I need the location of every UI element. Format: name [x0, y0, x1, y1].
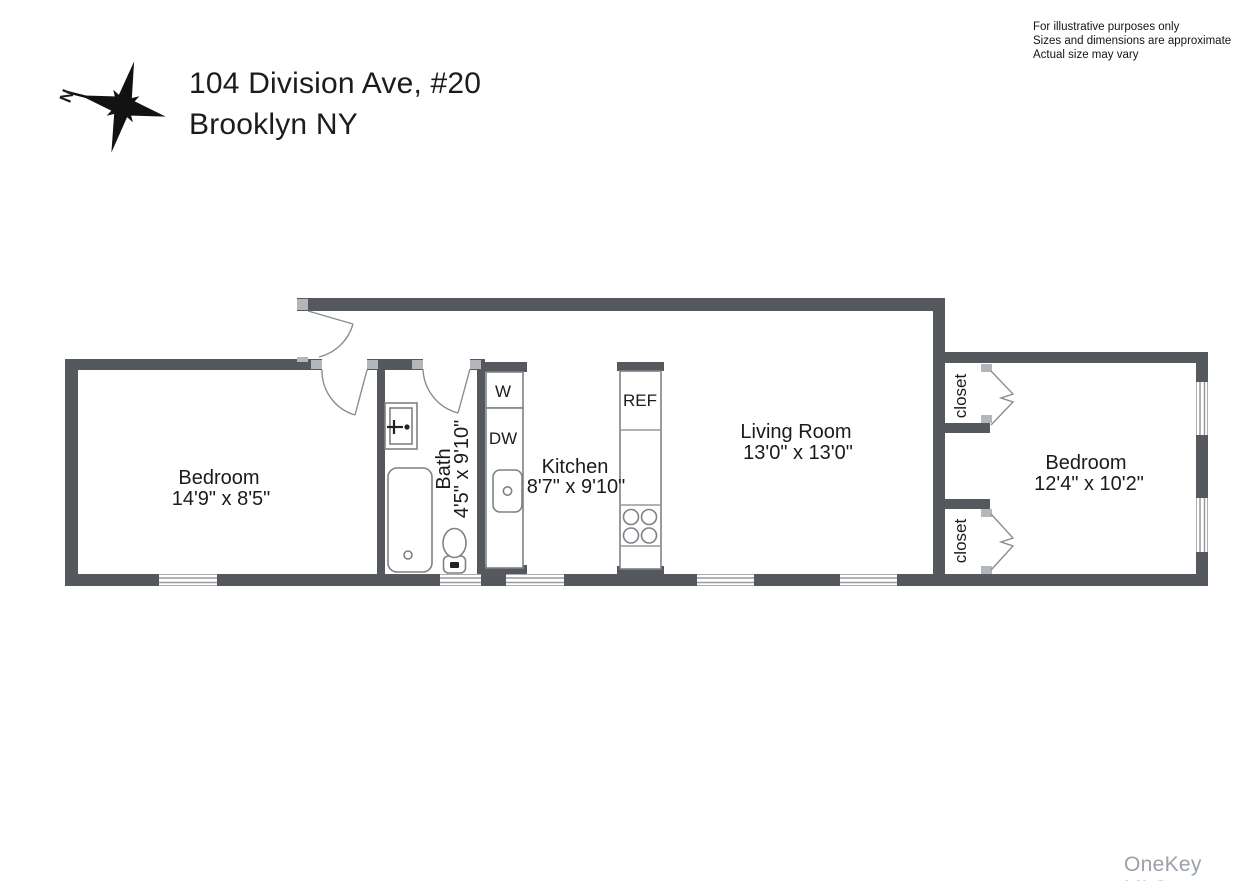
toilet [443, 529, 466, 574]
window [506, 575, 564, 586]
closet-top-label: closet [951, 374, 970, 419]
window [697, 575, 754, 586]
wall-bedroom2-top [933, 352, 1208, 363]
closet-bottom-bifold-door [991, 514, 1013, 570]
wall-top [297, 298, 945, 311]
jamb [981, 566, 992, 574]
counter-cap-left-top [483, 362, 527, 372]
kitchen-counter-left [486, 372, 523, 568]
floor-plan-page: 104 Division Ave, #20 Brooklyn NY For il… [0, 0, 1246, 881]
jamb [297, 357, 308, 362]
jamb [981, 364, 992, 372]
kitchen-label: Kitchen [542, 456, 609, 478]
jamb [412, 360, 423, 369]
closet-top-bifold-door [991, 371, 1013, 425]
counter-cap-right-top [617, 362, 664, 371]
living-room-label: Living Room [740, 421, 851, 443]
wall-left [65, 359, 78, 586]
wall-closet2-top [933, 499, 990, 509]
jamb [470, 360, 481, 369]
wall-bottom [65, 574, 1208, 586]
jamb [981, 415, 992, 423]
dishwasher-label: DW [489, 429, 517, 448]
jamb [367, 360, 378, 369]
window [840, 575, 897, 586]
bedroom-left-dims: 14'9" x 8'5" [172, 488, 271, 510]
bath-sink [385, 403, 417, 449]
window [1197, 498, 1208, 552]
entry-door-arc [308, 311, 353, 357]
wall-bedroom1-top [65, 359, 322, 370]
window [440, 575, 481, 586]
closet-bottom-label: closet [951, 519, 970, 564]
jamb [981, 509, 992, 517]
wall-living-east [933, 298, 945, 586]
window [159, 575, 217, 586]
wall-closet1-bottom [933, 423, 990, 433]
bedroom-right-label: Bedroom [1045, 452, 1126, 474]
bath-dims: 4'5" x 9'10" [451, 420, 473, 519]
wall-bath-left [377, 359, 385, 574]
living-room-dims: 13'0" x 13'0" [743, 442, 853, 464]
compass-icon: N [55, 47, 177, 163]
kitchen-sink [493, 470, 522, 512]
jamb [311, 360, 322, 369]
bathtub [388, 468, 432, 572]
bath-door-arc [423, 369, 470, 413]
floor-plan-svg: N [0, 0, 1246, 881]
washer-label: W [495, 382, 511, 401]
bedroom-left-door-arc [322, 370, 367, 415]
refrigerator-label: REF [623, 391, 657, 410]
jamb [297, 299, 308, 310]
bedroom-left-label: Bedroom [178, 467, 259, 489]
bedroom-right-dims: 12'4" x 10'2" [1034, 473, 1144, 495]
compass-north-label: N [56, 87, 78, 106]
kitchen-dims: 8'7" x 9'10" [527, 476, 626, 498]
window [1197, 382, 1208, 435]
wall-bath-right [477, 359, 485, 574]
